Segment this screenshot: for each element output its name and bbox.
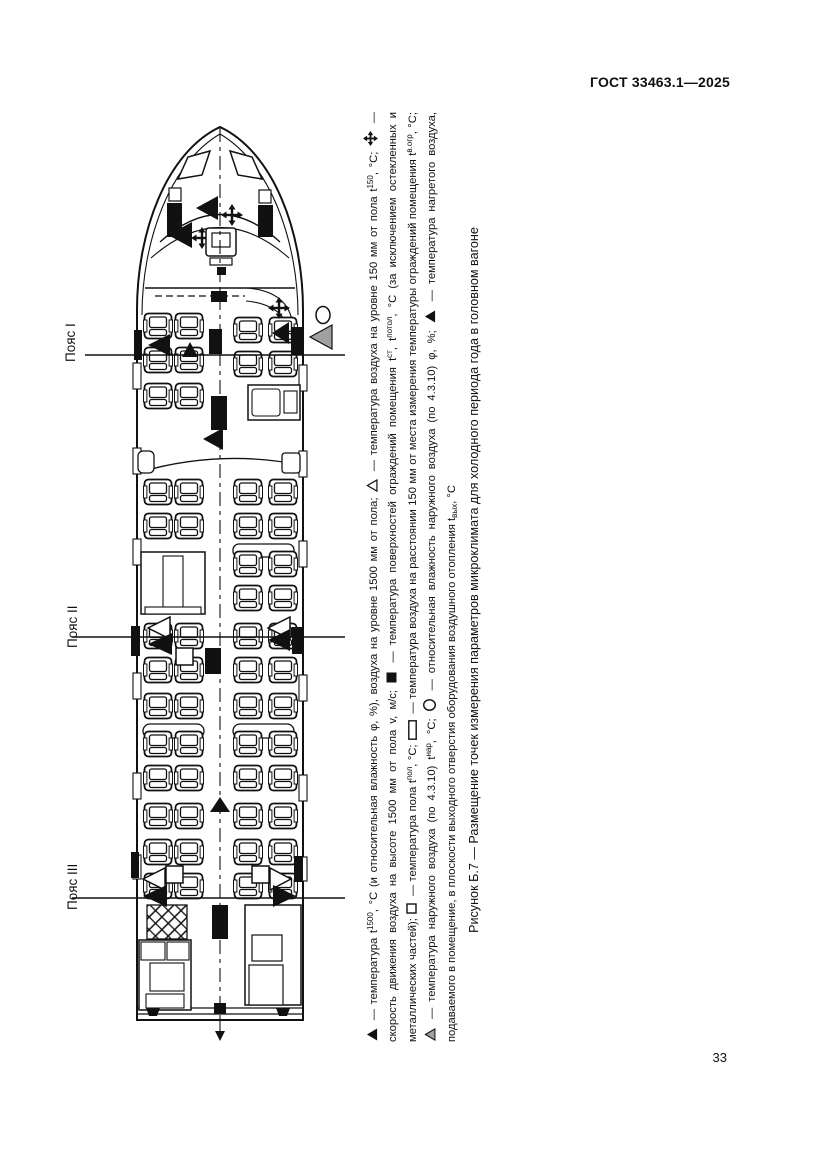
seat xyxy=(269,514,298,539)
seat xyxy=(234,694,263,719)
seat xyxy=(234,318,263,343)
zone-label-2: Пояс II xyxy=(65,592,80,648)
seat xyxy=(144,804,173,829)
wall-temp-mark xyxy=(212,905,228,939)
wall-temp-mark xyxy=(291,327,302,355)
zone-label-1: Пояс I xyxy=(63,310,78,362)
seat xyxy=(144,658,173,683)
triangle-open-icon xyxy=(366,479,378,492)
seat xyxy=(175,840,204,865)
seat xyxy=(269,694,298,719)
train-car-plan xyxy=(60,115,360,1055)
seat xyxy=(175,624,204,649)
seat xyxy=(269,658,298,683)
seat xyxy=(144,480,173,505)
square-open-icon xyxy=(406,903,417,914)
seat xyxy=(175,514,204,539)
legend-text: — температура t1500, °C (и относительная… xyxy=(363,112,462,1042)
page-number: 33 xyxy=(713,1050,727,1065)
seat xyxy=(269,552,298,577)
seat xyxy=(175,384,204,409)
seat xyxy=(269,586,298,611)
seat xyxy=(234,658,263,683)
seat xyxy=(144,732,173,757)
square-open-icon xyxy=(252,866,269,883)
circle-open-icon xyxy=(423,699,436,711)
wall-temp-mark xyxy=(211,396,227,430)
wall-temp-mark xyxy=(134,330,142,360)
seat xyxy=(269,480,298,505)
seat xyxy=(144,766,173,791)
square-filled-icon xyxy=(386,672,397,683)
zone-label-3: Пояс III xyxy=(65,850,80,910)
rect-open-icon xyxy=(408,720,417,740)
seat xyxy=(234,804,263,829)
seat xyxy=(234,766,263,791)
triangle-filled-icon xyxy=(424,310,436,323)
seat xyxy=(269,840,298,865)
seat xyxy=(144,840,173,865)
triangle-filled-icon xyxy=(366,1028,378,1041)
seat xyxy=(234,624,263,649)
hatched-module xyxy=(147,905,187,939)
circle-open-icon xyxy=(316,307,330,324)
wall-temp-mark xyxy=(131,852,139,878)
seat xyxy=(175,804,204,829)
seat xyxy=(234,514,263,539)
seat xyxy=(144,314,173,339)
seat xyxy=(234,840,263,865)
seat xyxy=(144,514,173,539)
seat xyxy=(269,804,298,829)
triangle-gray-icon xyxy=(424,1028,436,1041)
wall-temp-mark xyxy=(292,627,303,654)
seat xyxy=(175,766,204,791)
seat xyxy=(234,480,263,505)
wall-temp-mark xyxy=(209,329,222,354)
seat xyxy=(234,586,263,611)
seat xyxy=(175,314,204,339)
document-header: ГОСТ 33463.1—2025 xyxy=(590,74,730,90)
figure-legend: — температура t1500, °C (и относительная… xyxy=(363,112,465,1042)
seat xyxy=(269,732,298,757)
figure-caption: Рисунок Б.7 — Размещение точек измерения… xyxy=(467,204,485,956)
wall-temp-mark xyxy=(294,856,303,882)
document-page: ГОСТ 33463.1—2025 xyxy=(0,0,827,1169)
wall-temp-mark xyxy=(205,648,221,674)
seat xyxy=(144,694,173,719)
seat xyxy=(144,384,173,409)
triangle-gray-icon xyxy=(310,325,332,349)
seat xyxy=(234,552,263,577)
seat xyxy=(175,694,204,719)
wall-temp-mark xyxy=(258,205,273,237)
seat xyxy=(269,766,298,791)
square-open-icon xyxy=(176,648,193,665)
square-open-icon xyxy=(166,866,183,883)
seat xyxy=(175,480,204,505)
seat xyxy=(175,732,204,757)
wall-temp-mark xyxy=(131,626,140,656)
arrows-cross-icon xyxy=(363,131,378,146)
seat xyxy=(234,732,263,757)
